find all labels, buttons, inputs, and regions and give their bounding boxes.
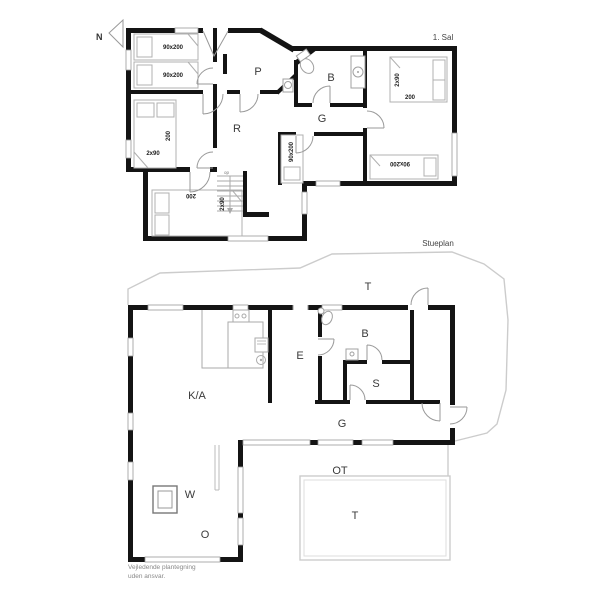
- room-label-w: W: [185, 489, 196, 501]
- kitchen-sink-icon: [255, 338, 268, 352]
- floorplan-canvas: 1. Sal P B G R 90x200 90x200 200 2x90 90…: [0, 0, 600, 600]
- room-label-t-bottom: T: [352, 510, 359, 522]
- room-label-s: S: [372, 378, 379, 390]
- room-label-g-lower: G: [338, 418, 347, 430]
- north-arrow: N: [96, 20, 123, 47]
- north-label: N: [96, 32, 103, 42]
- lower-fixtures: [153, 305, 358, 513]
- glass-divider: [215, 445, 219, 490]
- footer-line1: Vejledende plantegning: [128, 564, 196, 571]
- lower-plan-title: Stueplan: [422, 239, 454, 248]
- bed-dim-south-width: 2x90: [220, 197, 226, 211]
- bed-dim-south-length: 200: [185, 192, 196, 198]
- bed-dim-middle: 90x200: [289, 141, 295, 162]
- room-label-t-top: T: [365, 281, 372, 293]
- north-arrow-icon: [109, 20, 123, 47]
- room-label-ka: K/A: [188, 390, 206, 402]
- room-label-o: O: [201, 529, 210, 541]
- room-label-g-upper: G: [318, 113, 327, 125]
- upper-beds: [134, 34, 447, 236]
- room-label-r: R: [233, 123, 241, 135]
- room-label-b-lower: B: [361, 328, 368, 340]
- footer-disclaimer: Vejledende plantegning uden ansvar.: [128, 564, 196, 580]
- upper-plan: 1. Sal P B G R 90x200 90x200 200 2x90 90…: [96, 20, 457, 241]
- bed-dim-east-single: 90x200: [389, 160, 410, 166]
- room-label-p: P: [254, 66, 261, 78]
- terrace-bottom-outer: [300, 476, 450, 560]
- bed-dim-west-width: 2x90: [146, 151, 160, 157]
- upper-fixtures: [203, 31, 365, 214]
- bed-dim-east-length: 200: [405, 95, 416, 101]
- terrace-bottom-inner: [304, 480, 446, 556]
- bed-dim-west-length: 200: [166, 130, 172, 141]
- bed-dim-top1: 90x200: [163, 45, 184, 51]
- stairs-direction-label: op: [224, 170, 230, 175]
- bed-dim-top2: 90x200: [163, 73, 184, 79]
- floorplan-drawing: 1. Sal P B G R 90x200 90x200 200 2x90 90…: [0, 0, 600, 600]
- room-label-e: E: [296, 350, 303, 362]
- room-label-ot: OT: [332, 465, 348, 477]
- bath-sink-lower-icon: [346, 349, 358, 360]
- room-label-b-upper: B: [327, 72, 334, 84]
- lower-plan: Stueplan T B E S K/A G W O OT T: [128, 239, 508, 562]
- fireplace-icon: [153, 486, 177, 513]
- lower-outer-walls: [128, 305, 455, 562]
- bed-dim-east-width: 2x90: [395, 73, 401, 87]
- upper-plan-title: 1. Sal: [433, 33, 454, 42]
- terrace-outlines: [128, 252, 508, 560]
- entry-jambs: [293, 305, 308, 310]
- footer-line2: uden ansvar.: [128, 573, 165, 580]
